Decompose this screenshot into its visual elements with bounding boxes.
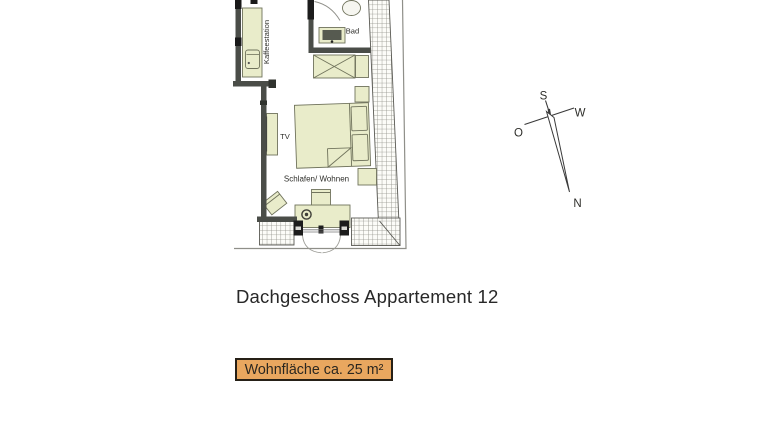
roof-edge-band: [369, 0, 401, 246]
side-cabinet: [356, 56, 369, 78]
terrace-door-swing-right: [323, 236, 341, 253]
tv-board: [267, 114, 278, 156]
compass-label-o: O: [514, 128, 523, 140]
area-badge: Wohnfläche ca. 25 m²: [235, 358, 393, 381]
label-kaffeestation: Kaffeestation: [262, 20, 271, 64]
bed: [294, 103, 370, 169]
wall-kaffee-left-cap-top: [235, 0, 242, 9]
door-post-right-slot: [342, 227, 348, 231]
plate-center: [305, 213, 308, 216]
appliance-knob: [248, 62, 250, 64]
label-tv: TV: [280, 132, 291, 141]
page: Kaffeestation Bad TV Schlafen/ Wohnen S …: [0, 0, 768, 432]
door-post-left-slot: [296, 227, 302, 231]
area-badge-label: Wohnfläche ca. 25 m²: [245, 362, 384, 378]
pillow-top: [351, 106, 367, 131]
coffee-appliance: [246, 50, 260, 69]
compass-rose: S W O N: [514, 91, 586, 211]
chair-at-table: [312, 190, 331, 206]
bath-door-leaf: [308, 0, 315, 20]
terrace-hatch-left: [260, 220, 295, 246]
wall-room-bottom: [257, 217, 297, 223]
compass-label-s: S: [540, 91, 548, 103]
terrace-door-swing-left: [303, 236, 322, 253]
label-bad: Bad: [346, 27, 360, 36]
wall-bath-bottom: [309, 48, 371, 54]
wall-top-stub: [251, 0, 258, 4]
wall-room-left-pier: [260, 101, 267, 106]
page-title: Dachgeschoss Appartement 12: [236, 286, 499, 308]
compass-label-w: W: [575, 108, 586, 120]
nightstand-top: [355, 87, 369, 103]
wall-room-left: [261, 86, 267, 222]
wall-kaffee-left-cap-mid: [235, 38, 242, 47]
pillow-bottom: [352, 134, 368, 161]
nightstand-bottom: [358, 169, 377, 186]
bath-door-swing-arc: [315, 2, 341, 21]
compass-label-n: N: [573, 198, 581, 210]
toilet: [343, 1, 361, 16]
compass-needle: [547, 112, 570, 193]
wall-kaffee-bottom-cap: [269, 80, 277, 89]
label-schlafen-wohnen: Schlafen/ Wohnen: [284, 175, 349, 184]
sink-basin: [323, 30, 342, 40]
terrace-hatch-right: [352, 218, 401, 246]
sink-tap-dot: [331, 40, 334, 43]
